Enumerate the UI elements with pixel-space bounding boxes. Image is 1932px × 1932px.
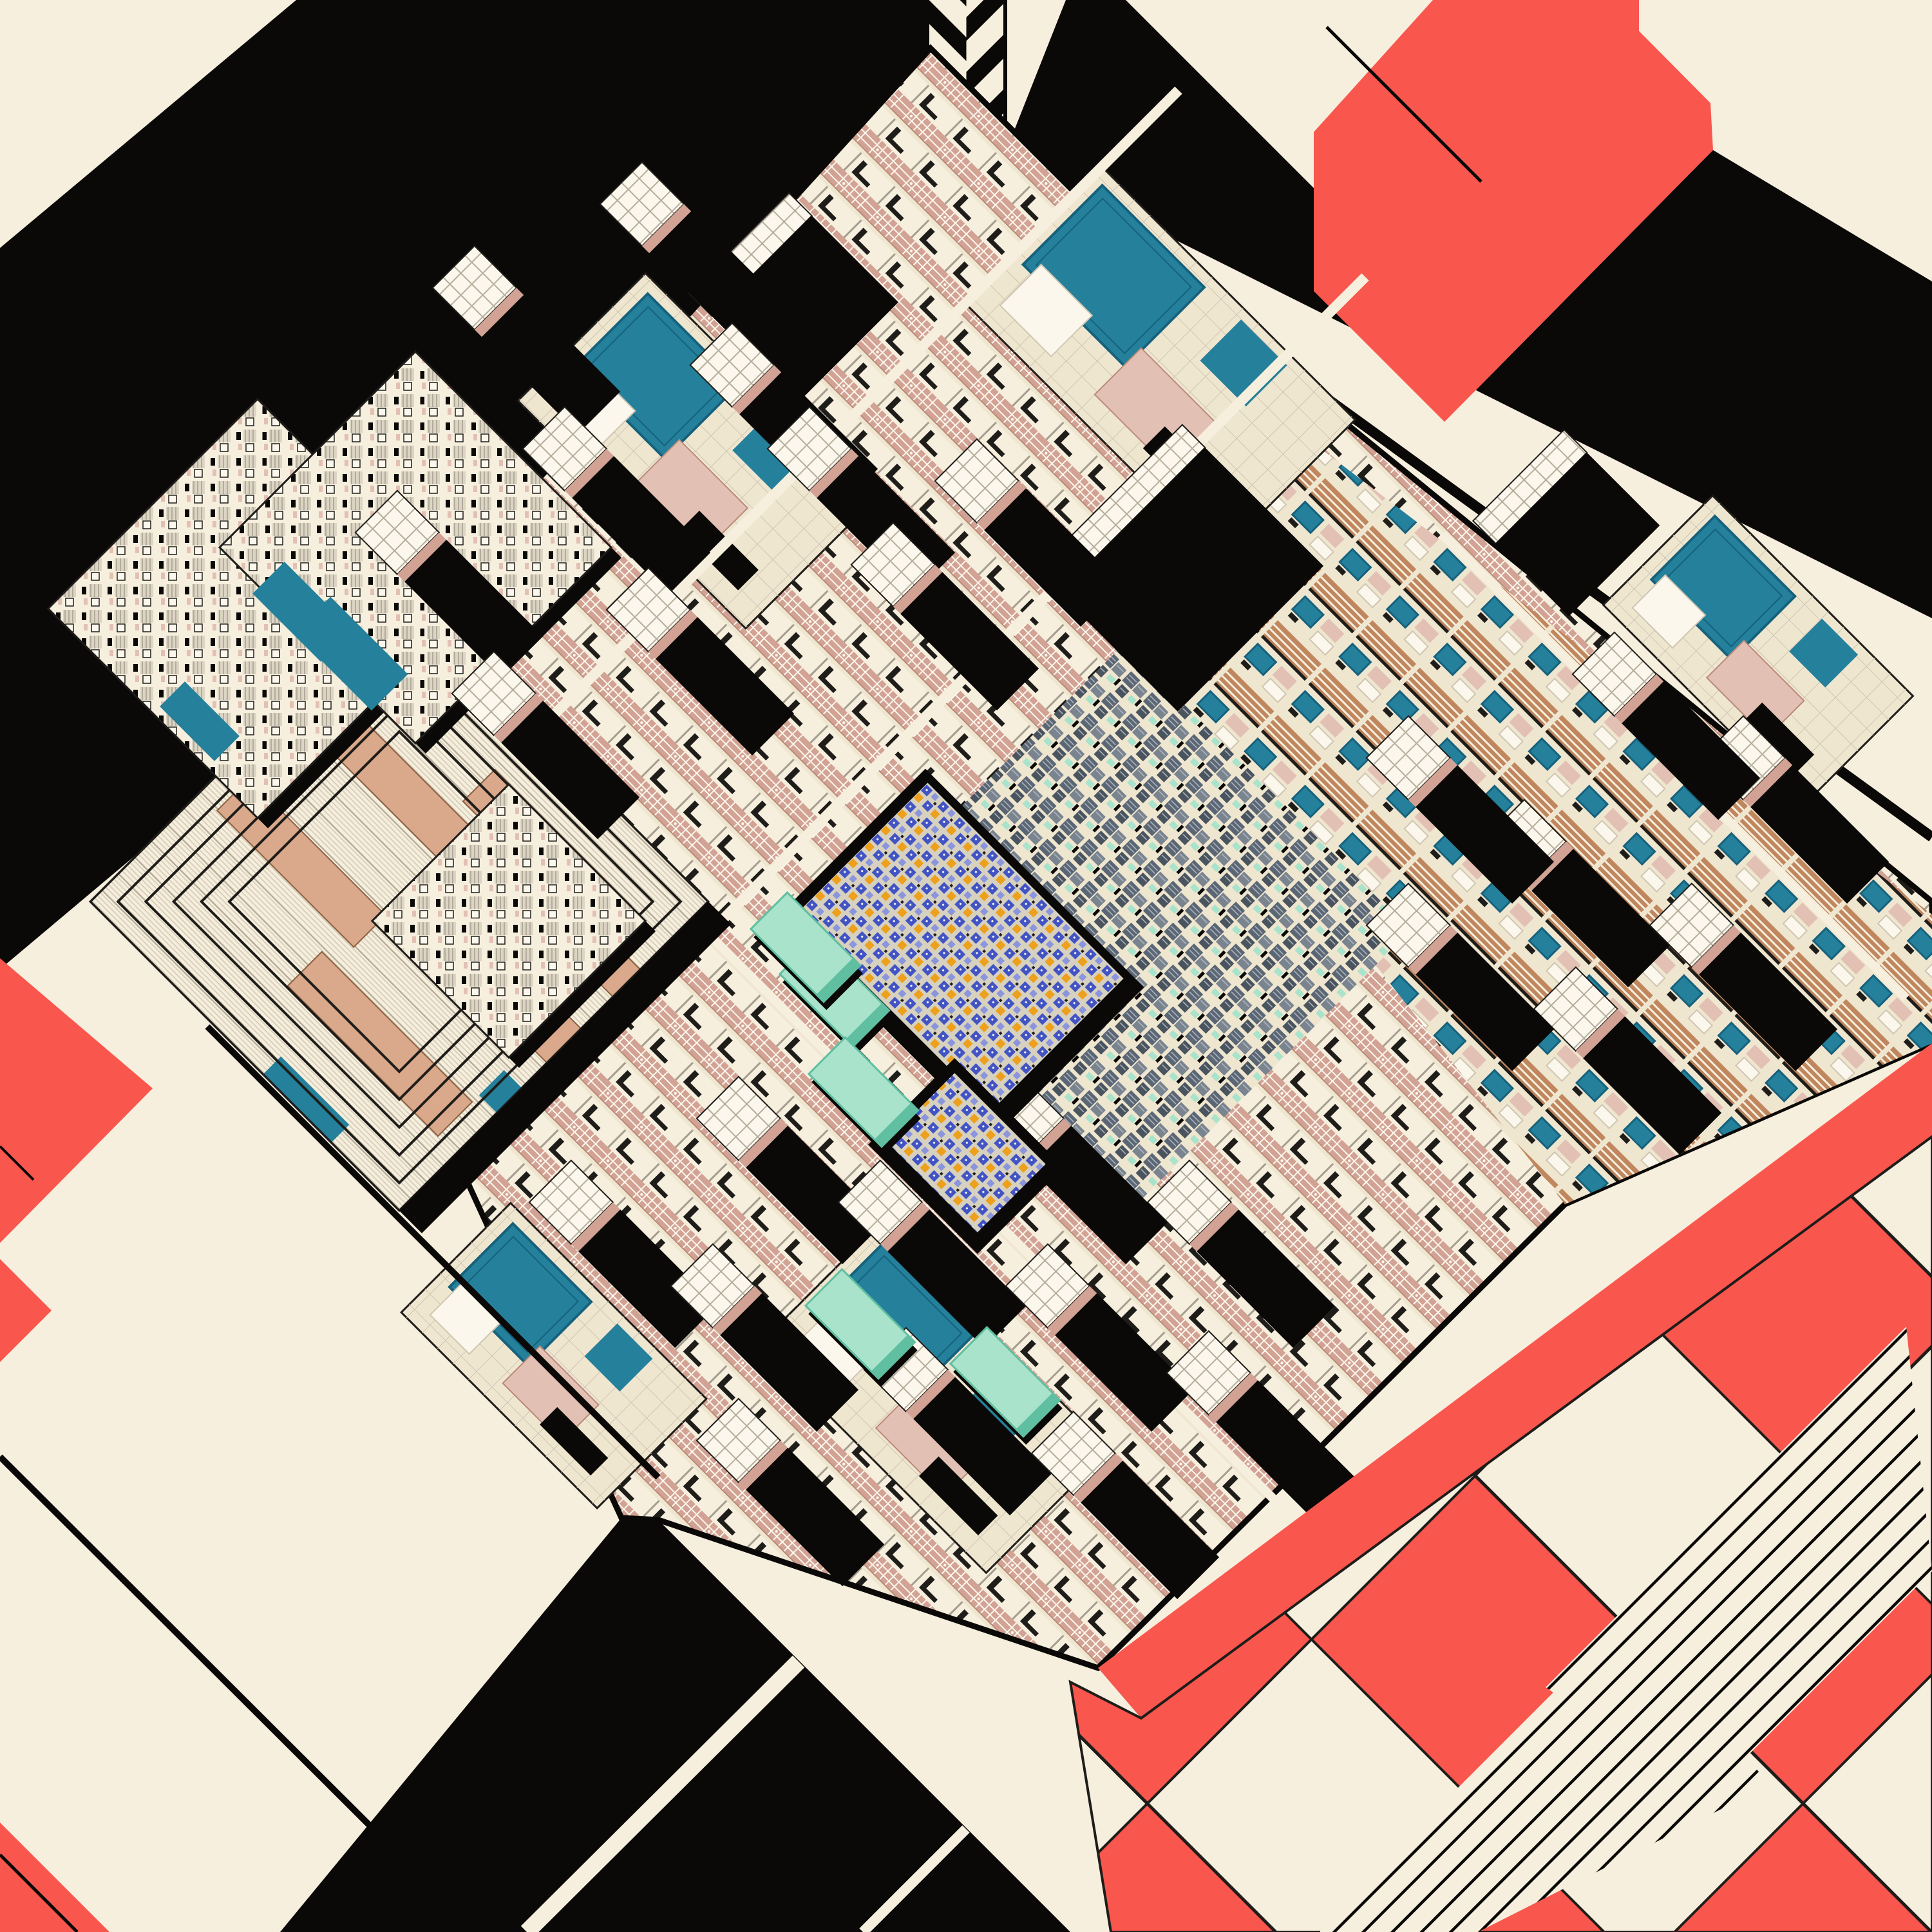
- artwork-canvas: [0, 0, 1932, 1932]
- scene-root: [0, 0, 1932, 1932]
- generative-artwork: [0, 0, 1932, 1932]
